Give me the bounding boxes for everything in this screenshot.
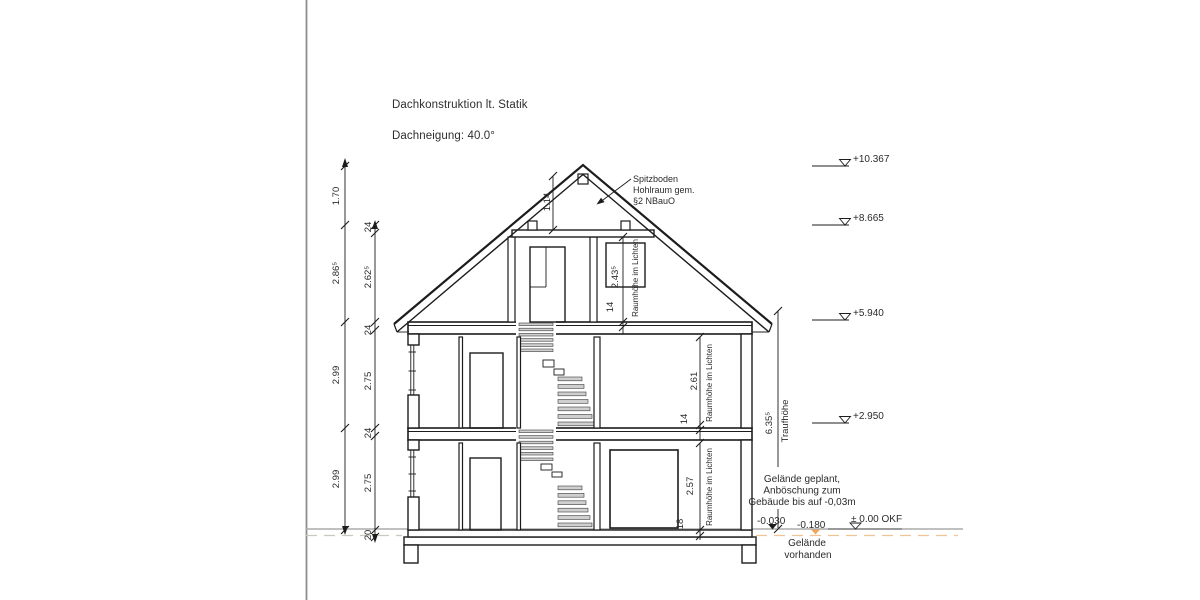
window-og: [409, 345, 417, 395]
leader-arrow: [597, 198, 605, 205]
collar-beam: [512, 230, 654, 237]
existing-terrain-label: Gelände: [788, 538, 826, 549]
dim-room-eg: 2.57 18 Raumhöhe im Lichten: [675, 439, 714, 540]
terrace-door-eg: [610, 450, 678, 528]
dim-label-og-room: Raumhöhe im Lichten: [705, 344, 714, 422]
elevation-marker: +10.367: [812, 154, 890, 166]
dim-inner-label: 2.75: [363, 474, 374, 493]
level-existing-label: -0.180: [797, 520, 826, 531]
door-eg: [470, 458, 501, 530]
section-drawing: Spitzboden Hohlraum gem. §2 NBauO 1.14 2…: [0, 0, 1200, 600]
planned-terrain-note: Gebäude bis auf -0,03m: [748, 497, 855, 508]
level-existing-marker: [811, 530, 820, 535]
dim-label-og-height: 2.61: [689, 372, 700, 391]
planned-terrain-note: Anböschung zum: [763, 486, 840, 497]
door-dg: [530, 247, 565, 322]
dim-room-og: 2.61 14 Raumhöhe im Lichten: [679, 333, 714, 440]
dim-outer-label: 2.99: [331, 366, 342, 385]
dim-inner-label: 20: [363, 530, 374, 541]
dim-label-eg-room: Raumhöhe im Lichten: [705, 448, 714, 526]
door-og: [470, 353, 503, 428]
dim-outer-label: 2.86⁵: [331, 262, 342, 284]
dim-inner-label: 2.75: [363, 372, 374, 391]
dim-label-dg-height: 2.43⁵: [610, 266, 621, 288]
attic-note-line: Hohlraum gem.: [633, 185, 695, 195]
attic-note-line: §2 NBauO: [633, 196, 675, 206]
traufhoehe-label: Traufhöhe: [780, 400, 791, 443]
ridge-purlin: [578, 174, 588, 184]
foundation: [404, 530, 756, 563]
dim-inner-label: 2.62⁵: [363, 266, 374, 288]
dim-inner-label: 24: [363, 325, 374, 336]
planned-terrain-note: Gelände geplant,: [764, 474, 840, 485]
elevation-marker: +2.950: [812, 411, 884, 423]
dim-label-og-slab: 14: [679, 414, 690, 425]
elevation-label: +10.367: [853, 154, 890, 165]
elevation-label: +2.950: [853, 411, 884, 422]
elevation-label: +8.665: [853, 213, 884, 224]
roof: [394, 165, 772, 332]
elevation-marker: +5.940: [812, 308, 884, 320]
ground-annotations: Gelände geplant, Anböschung zum Gebäude …: [748, 474, 902, 561]
dim-room-dg: 2.43⁵ 14 Raumhöhe im Lichten: [605, 233, 640, 334]
dim-label-ridge: 1.14: [542, 193, 553, 212]
elevation-markers: +10.367 +8.665 +5.940 +2.950: [812, 154, 890, 423]
level-zero-marker: [850, 523, 861, 529]
dim-outer-label: 1.70: [331, 187, 342, 206]
dim-label-dg-slab: 14: [605, 302, 616, 313]
elevation-label: +5.940: [853, 308, 884, 319]
attic-note-line: Spitzboden: [633, 174, 678, 184]
dim-chain-inner: 24 2.62⁵ 24 2.75 24 2.75 20: [363, 220, 379, 543]
dim-inner-label: 24: [363, 428, 374, 439]
drawing-sheet: Dachkonstruktion lt. Statik Dachneigung:…: [0, 0, 1200, 600]
dim-label-dg-room: Raumhöhe im Lichten: [631, 239, 640, 317]
dim-inner-label: 24: [363, 222, 374, 233]
dim-label-eg-height: 2.57: [685, 477, 696, 496]
dim-outer-label: 2.99: [331, 470, 342, 489]
staircase-og-dg: [519, 323, 594, 426]
traufhoehe-value: 6.35⁵: [764, 412, 775, 434]
window-eg: [409, 450, 417, 497]
staircase-eg-og: [519, 430, 592, 527]
elevation-marker: +8.665: [812, 213, 884, 225]
dim-chain-outer: 1.70 2.86⁵ 2.99 2.99: [331, 158, 349, 535]
dim-ridge: 1.14: [542, 172, 557, 234]
dim-label-eg-slab: 18: [675, 519, 686, 530]
existing-terrain-label: vorhanden: [784, 550, 831, 561]
